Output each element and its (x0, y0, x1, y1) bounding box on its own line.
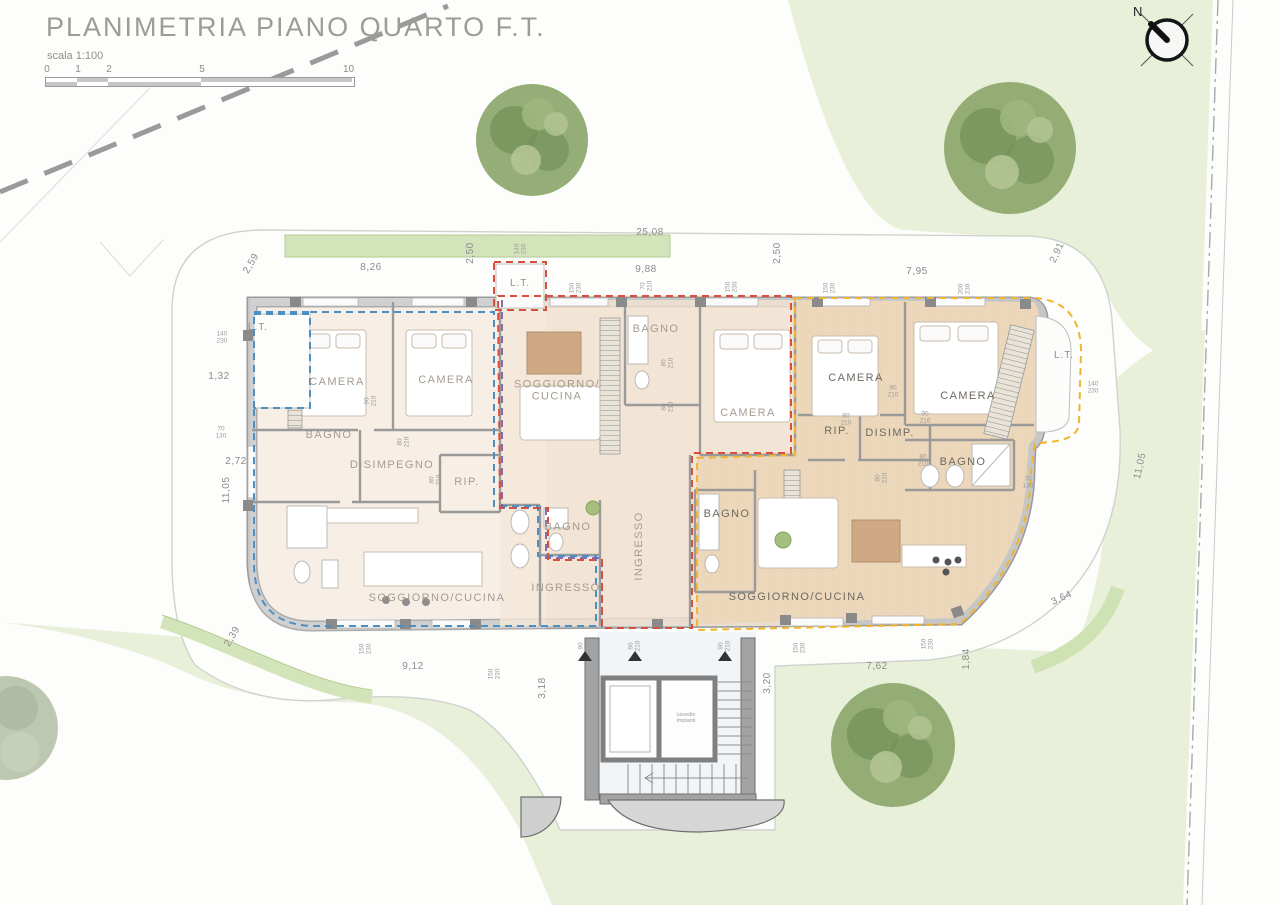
scale-bar: 0 1 2 5 10 m (45, 64, 355, 90)
scale-tick: 5 (199, 64, 205, 75)
site-plan-drawing (0, 0, 1280, 905)
scale-tick: 2 (106, 64, 112, 75)
scale-tick: 0 (44, 64, 50, 75)
scale-tick: 1 (75, 64, 81, 75)
scale-bar-rule (45, 77, 355, 87)
page-title: PLANIMETRIA PIANO QUARTO F.T. (46, 12, 546, 43)
north-arrow (1141, 14, 1193, 66)
scale-label: scala 1:100 (47, 50, 103, 62)
floor-plan-page: PLANIMETRIA PIANO QUARTO F.T. scala 1:10… (0, 0, 1280, 905)
north-label: N (1133, 4, 1142, 19)
